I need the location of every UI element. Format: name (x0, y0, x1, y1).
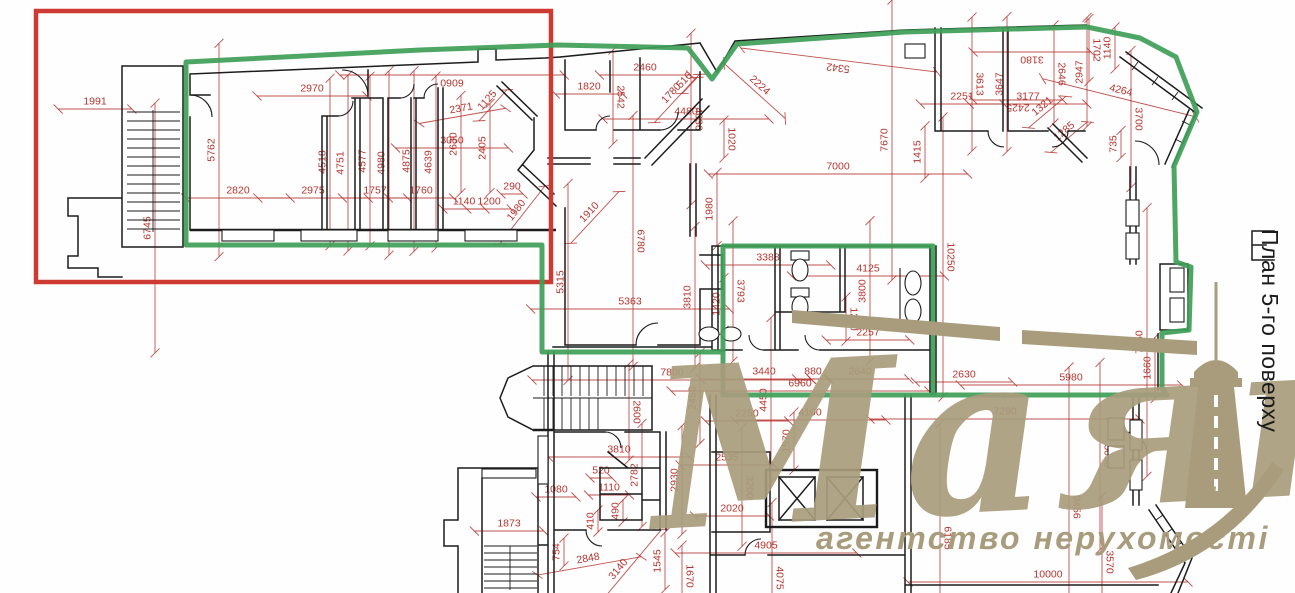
dimension-label: 3793 (735, 279, 747, 303)
dimension-label: 10000 (1033, 569, 1062, 581)
floor-plan-image: 1991674557622820297517571760297060604518… (0, 0, 1295, 593)
dimension-label: 3800 (857, 279, 869, 303)
dimension-label: 3180 (1020, 54, 1044, 66)
dimension-label: 6780 (635, 229, 647, 253)
dimension-label: 2405 (477, 136, 489, 160)
dimension-label: 1980 (704, 197, 716, 221)
dimension-label: 735 (1108, 135, 1120, 153)
dimension-label: 3388 (756, 252, 780, 264)
dimension-label: 1991 (83, 96, 107, 108)
dimension-label: 4577 (357, 149, 369, 173)
dimension-label: 3140 (606, 556, 630, 582)
floor-plan-page: 1991674557622820297517571760297060604518… (0, 0, 1295, 593)
dimension-label: 3177 (1016, 91, 1040, 103)
dimension-label: 490 (610, 502, 622, 520)
dimension-label: 4125 (856, 263, 880, 275)
dimension-label: 2600 (631, 400, 643, 424)
brand-tagline: агентство нерухомості (816, 520, 1270, 556)
dimension-label: 2782 (629, 463, 641, 487)
dimension-label: 5363 (618, 296, 642, 308)
dimension-label: 5342 (826, 60, 851, 75)
dimension-label: 1125 (475, 88, 499, 113)
dimension-label: 3810 (682, 285, 694, 309)
dimension-label: 1980 (504, 197, 528, 223)
dimension-label: 2542 (615, 85, 627, 109)
dimension-label: 1020 (726, 127, 738, 151)
dimension-label: 1873 (497, 518, 521, 530)
dimension-label: 3700 (1133, 107, 1145, 131)
dimension-label: 1110 (598, 482, 620, 494)
dimension-label: 2224 (747, 73, 773, 98)
watermark: Маяк агентство нерухомості (637, 282, 1295, 582)
dimension-label: 2848 (576, 551, 601, 567)
dimension-label: 2251 (950, 91, 974, 103)
dimension-label: 290 (503, 181, 521, 193)
dimension-label: 10250 (945, 242, 957, 271)
dimension-label: 1415 (912, 140, 924, 164)
floor-plan-title: План 5-го поверху (1257, 229, 1283, 432)
dimension-label: 7000 (826, 161, 850, 173)
dimension-label: 4751 (335, 151, 347, 175)
dimension-label: 1910 (577, 200, 602, 225)
dimension-label: 2630 (448, 132, 460, 156)
dimension-label: 2820 (226, 185, 250, 197)
dimension-label: 754 (551, 543, 563, 561)
dimension-label: 1820 (577, 81, 601, 93)
dimension-label: 410 (585, 512, 597, 530)
dimension-label: 2947 (1074, 60, 1086, 84)
dimension-label: 4636 (693, 107, 705, 131)
dimension-label: 2460 (633, 62, 657, 74)
dimension-label: 3613 (974, 72, 986, 96)
dimension-label: 1760 (409, 185, 433, 197)
dimension-label: 6060 (440, 77, 464, 89)
dimension-label: 5762 (206, 138, 218, 162)
dimension-label: 4980 (376, 151, 388, 175)
dimension-label: 520 (592, 465, 610, 477)
dimension-label: 7670 (879, 128, 891, 152)
dimension-label: 4639 (423, 150, 435, 174)
dimension-label: 2425 (1006, 102, 1030, 114)
dimension-label: 1140 (1102, 37, 1114, 60)
dimension-label: 1200 (477, 196, 501, 208)
dimension-label: 4264 (1108, 82, 1134, 99)
dimension-label: 2970 (300, 83, 324, 95)
